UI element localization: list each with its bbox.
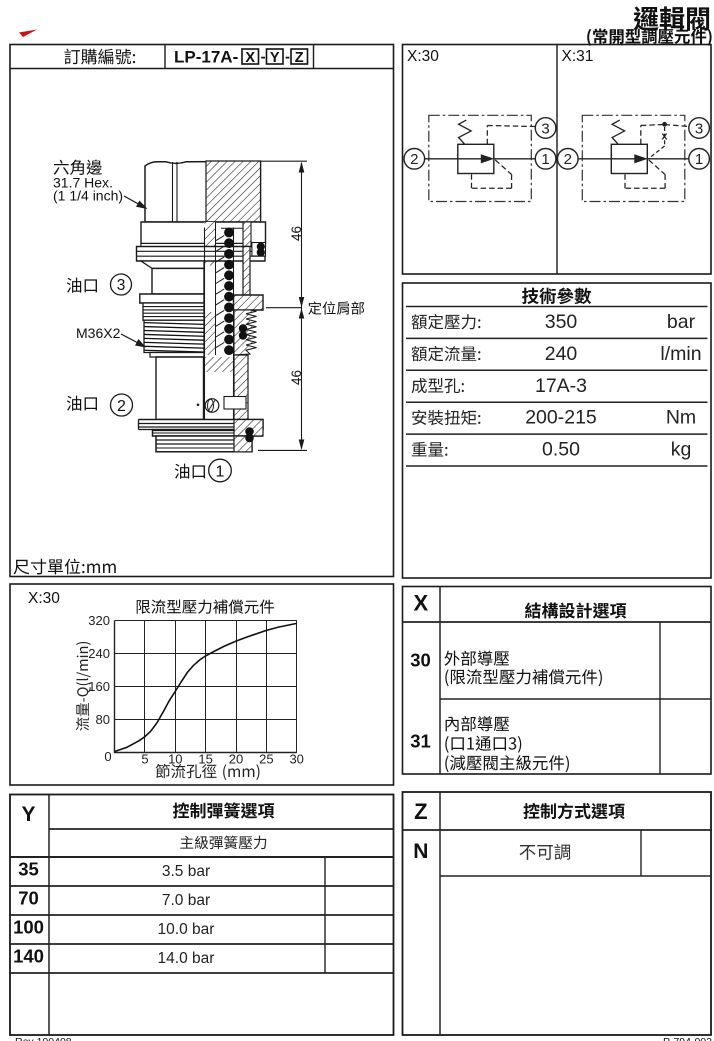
svg-text:X:30: X:30: [407, 48, 439, 65]
svg-text:31: 31: [410, 731, 431, 752]
svg-text:(1 1/4 inch): (1 1/4 inch): [53, 188, 123, 204]
svg-text:7.0 bar: 7.0 bar: [162, 892, 210, 909]
svg-text:14.0 bar: 14.0 bar: [158, 950, 215, 967]
svg-text:80: 80: [96, 712, 110, 727]
svg-text:P-794-002: P-794-002: [663, 1036, 712, 1041]
svg-text:2: 2: [564, 151, 572, 168]
svg-text:3: 3: [541, 120, 549, 137]
svg-text:3: 3: [117, 277, 126, 294]
svg-text:100: 100: [13, 917, 44, 938]
svg-text:30: 30: [410, 650, 431, 671]
svg-text:Nm: Nm: [666, 407, 696, 429]
svg-text:160: 160: [88, 679, 110, 694]
svg-text:x: x: [661, 131, 668, 143]
svg-text:X: X: [245, 50, 255, 66]
svg-text:l/min: l/min: [660, 343, 701, 365]
svg-text:Rev 100408: Rev 100408: [15, 1036, 72, 1041]
svg-text:46: 46: [289, 226, 304, 241]
svg-text:240: 240: [545, 343, 578, 365]
svg-text:bar: bar: [667, 311, 696, 333]
svg-text:3.5 bar: 3.5 bar: [162, 863, 210, 880]
svg-text:Z: Z: [295, 50, 304, 66]
svg-text:Z: Z: [414, 799, 427, 824]
svg-text:46: 46: [289, 370, 304, 385]
svg-text:-: -: [285, 49, 290, 66]
svg-text:70: 70: [18, 888, 39, 909]
svg-text:30: 30: [289, 752, 303, 767]
svg-text:1: 1: [695, 151, 703, 168]
svg-text:X: X: [413, 591, 428, 616]
svg-text:1: 1: [216, 463, 225, 480]
svg-text:240: 240: [88, 646, 110, 661]
svg-text:M36X2: M36X2: [76, 325, 121, 341]
svg-text:X:31: X:31: [562, 48, 594, 65]
svg-text:X:30: X:30: [28, 590, 60, 607]
svg-text:5: 5: [141, 752, 148, 767]
svg-text:10.0 bar: 10.0 bar: [158, 921, 215, 938]
svg-text:LP-17A-: LP-17A-: [174, 48, 238, 67]
svg-text:Y: Y: [21, 803, 35, 826]
svg-text:350: 350: [545, 311, 578, 333]
svg-text:Y: Y: [270, 50, 280, 66]
svg-text:2: 2: [117, 398, 126, 415]
svg-text:0.50: 0.50: [542, 439, 580, 461]
svg-text:17A-3: 17A-3: [535, 375, 587, 397]
svg-text:-: -: [261, 49, 266, 66]
svg-text:2: 2: [410, 151, 418, 168]
svg-text:1: 1: [541, 151, 549, 168]
svg-text:25: 25: [259, 752, 273, 767]
svg-text:0: 0: [104, 749, 111, 764]
svg-text:140: 140: [13, 946, 44, 967]
svg-text:35: 35: [18, 859, 39, 880]
svg-text:20: 20: [229, 752, 243, 767]
svg-text:3: 3: [695, 120, 703, 137]
svg-text:kg: kg: [671, 439, 692, 461]
svg-text:N: N: [413, 840, 428, 863]
svg-text:320: 320: [88, 613, 110, 628]
svg-text:200-215: 200-215: [525, 407, 597, 429]
